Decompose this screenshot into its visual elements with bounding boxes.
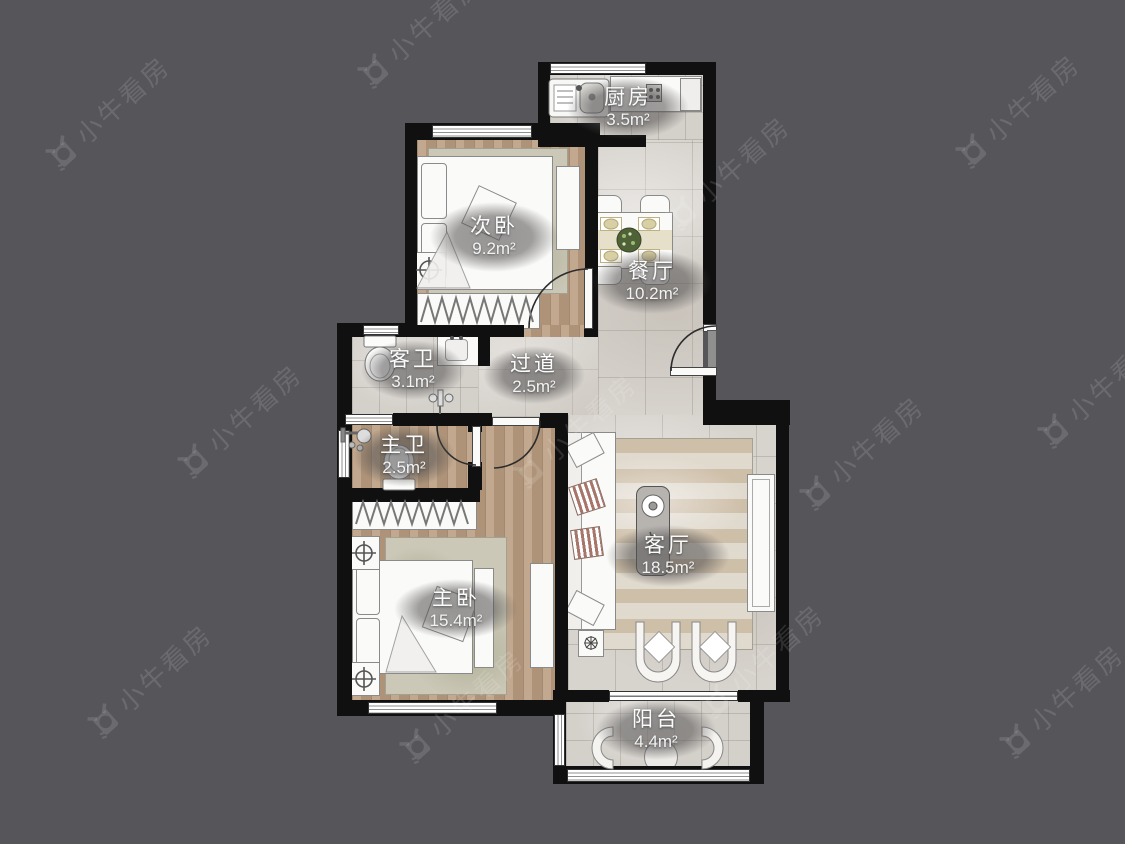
room-area: 18.5m² [642, 558, 695, 578]
wall [738, 690, 790, 702]
room-name: 厨房 [604, 86, 652, 110]
ceiling-light-box [348, 662, 380, 696]
master-bedroom-door-leaf [492, 417, 540, 426]
room-name: 主卫 [380, 434, 428, 458]
entry-door-leaf [670, 367, 717, 376]
watermark-text: 小牛看房 [199, 355, 310, 460]
wall [337, 323, 352, 716]
room-name: 次卧 [470, 215, 518, 239]
watermark-text: 小牛看房 [67, 47, 178, 152]
bull-logo-icon [172, 438, 217, 483]
entry-door-panel [707, 330, 717, 370]
watermark-text: 小牛看房 [977, 45, 1088, 150]
room-label-hallway: 过道 2.5m² [483, 346, 585, 404]
bull-logo-icon [352, 48, 397, 93]
wall [405, 325, 524, 337]
room-label-balcony: 阳台 4.4m² [596, 700, 716, 760]
bull-logo-icon [950, 128, 995, 173]
bull-logo-icon [794, 470, 839, 515]
window [432, 125, 532, 138]
ceiling-light-box [412, 252, 446, 288]
table-runner [586, 230, 672, 250]
pillow [356, 565, 380, 615]
brand-watermark: 小牛看房 [38, 47, 177, 178]
room-area: 2.5m² [512, 377, 555, 397]
room-name: 过道 [510, 353, 558, 377]
pillow [356, 618, 380, 668]
balcony-railing-window [567, 769, 750, 782]
room-name: 客厅 [644, 534, 692, 558]
room-area: 4.4m² [634, 732, 677, 752]
wall [776, 423, 789, 702]
room-label-kitchen: 厨房 3.5m² [567, 77, 689, 139]
floorplan-canvas: 厨房 3.5m² 次卧 9.2m² 餐厅 10.2m² 客卫 3.1m² 过道 … [0, 0, 1125, 844]
brand-watermark: 小牛看房 [170, 355, 309, 486]
placemat [600, 217, 622, 231]
placemat [638, 217, 660, 231]
watermark-text: 小牛看房 [1021, 635, 1125, 740]
wall [405, 123, 417, 337]
wall [337, 488, 480, 502]
wall [703, 400, 790, 425]
room-area: 2.5m² [382, 458, 425, 478]
wall [555, 423, 568, 702]
wall [703, 375, 716, 403]
watermark-text: 小牛看房 [821, 387, 932, 492]
room-label-living-room: 客厅 18.5m² [606, 525, 730, 587]
brand-watermark: 小牛看房 [792, 387, 931, 518]
room-area: 3.1m² [391, 372, 434, 392]
room-area: 10.2m² [626, 284, 679, 304]
balcony-sliding-door [609, 691, 738, 701]
window [554, 714, 565, 766]
window [368, 702, 497, 714]
window [345, 414, 393, 425]
bull-logo-icon [40, 130, 85, 175]
room-label-master-bedroom: 主卧 15.4m² [394, 579, 518, 639]
bull-logo-icon [994, 718, 1039, 763]
bull-logo-icon [1032, 408, 1077, 453]
window [363, 325, 399, 335]
bull-logo-icon [394, 723, 439, 768]
master-tv-console [530, 563, 554, 668]
room-name: 主卧 [432, 587, 480, 611]
brand-watermark: 小牛看房 [350, 0, 489, 95]
room-label-master-bathroom: 主卫 2.5m² [353, 425, 455, 487]
brand-watermark: 小牛看房 [1030, 325, 1125, 456]
room-name: 阳台 [632, 708, 680, 732]
ceiling-light-box [348, 536, 380, 570]
pillow [421, 163, 447, 219]
room-label-guest-bathroom: 客卫 3.1m² [361, 340, 465, 400]
room-name: 餐厅 [628, 260, 676, 284]
living-tv-console [747, 474, 775, 612]
room-label-secondary-bedroom: 次卧 9.2m² [430, 202, 558, 272]
window [550, 63, 646, 74]
striped-cushion [570, 526, 604, 560]
room-label-dining-room: 餐厅 10.2m² [592, 250, 712, 314]
plant-stand [578, 630, 604, 657]
bull-logo-icon [82, 698, 127, 743]
secondary-bedroom-dresser [556, 166, 580, 250]
watermark-text: 小牛看房 [1059, 325, 1125, 430]
room-area: 3.5m² [606, 110, 649, 130]
brand-watermark: 小牛看房 [80, 615, 219, 746]
room-area: 9.2m² [472, 239, 515, 259]
room-area: 15.4m² [430, 611, 483, 631]
secondary-bedroom-wardrobe [417, 293, 540, 329]
window [338, 430, 350, 478]
watermark-text: 小牛看房 [109, 615, 220, 720]
watermark-text: 小牛看房 [379, 0, 490, 70]
brand-watermark: 小牛看房 [992, 635, 1125, 766]
master-bathroom-door-leaf [472, 426, 481, 467]
brand-watermark: 小牛看房 [948, 45, 1087, 176]
room-name: 客卫 [389, 348, 437, 372]
